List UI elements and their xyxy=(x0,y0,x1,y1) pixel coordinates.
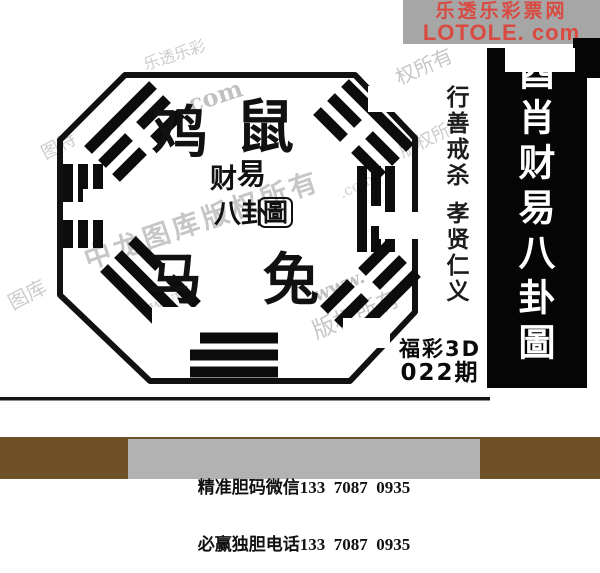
lottery-bagua-chart: { "logo": { "line1": "乐透乐彩票网", "line2": … xyxy=(0,0,600,479)
white-cover-box-bottom-right xyxy=(343,318,390,348)
white-cover-box-top-right xyxy=(368,86,410,112)
contact-line2: 必赢独胆电话133 7087 0935 xyxy=(128,535,480,554)
panel-title-rest: 肖财易八卦圖 xyxy=(512,98,556,368)
trigram-bottom xyxy=(190,338,278,372)
zodiac-rabbit: 兔 xyxy=(263,252,319,308)
poster-bottom-border xyxy=(0,397,490,401)
logo-site-name: 乐透乐彩票网 xyxy=(403,1,600,22)
lottery-issue: 022期 xyxy=(385,361,495,386)
zodiac-rooster: 鸡 xyxy=(152,105,208,161)
site-logo: 乐透乐彩票网 LOTOLE. com xyxy=(403,0,600,44)
contact-box: 精准胆码微信133 7087 0935 必赢独胆电话133 7087 0935 xyxy=(128,439,480,479)
lottery-issue-block: 福彩3D 022期 xyxy=(385,337,495,386)
zodiac-rat: 鼠 xyxy=(236,98,294,156)
center-seal-tu: 圖 xyxy=(258,197,293,228)
white-cover-box-bottom-left xyxy=(152,307,200,345)
panel-vertical-title: 酉肖财易八卦圖 xyxy=(515,53,552,368)
virtue-text-bottom: 孝贤仁义 xyxy=(444,201,467,305)
white-cover-box-panel-top xyxy=(505,48,575,72)
center-label-yi: 易 xyxy=(237,160,266,189)
virtue-text-top: 行善戒杀 xyxy=(444,85,467,189)
white-cover-box-left xyxy=(83,189,137,216)
title-panel: 酉肖财易八卦圖 xyxy=(487,48,587,388)
lottery-name: 福彩3D xyxy=(385,337,495,361)
zodiac-horse: 马 xyxy=(148,252,202,306)
trigram-right xyxy=(362,166,390,252)
white-cover-box-right xyxy=(379,212,425,239)
logo-site-url: LOTOLE. com xyxy=(403,22,600,43)
panel-top-corner-block xyxy=(573,38,600,78)
center-label-cai: 财 xyxy=(210,166,237,193)
contact-line1: 精准胆码微信133 7087 0935 xyxy=(128,478,480,497)
